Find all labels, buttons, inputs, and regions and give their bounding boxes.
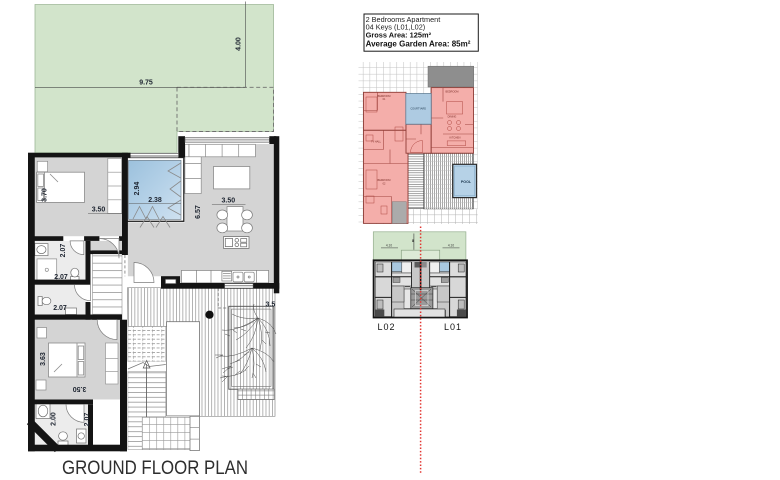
svg-text:2.07: 2.07 [60, 244, 67, 258]
svg-text:3.70: 3.70 [42, 188, 49, 202]
svg-text:4.00: 4.00 [236, 37, 243, 51]
svg-text:COURTYARD: COURTYARD [410, 108, 426, 111]
svg-text:3.50: 3.50 [221, 198, 235, 205]
svg-text:L02: L02 [377, 322, 395, 332]
svg-text:GROUND FLOOR PLAN: GROUND FLOOR PLAN [62, 457, 248, 479]
svg-text:3.63: 3.63 [40, 352, 47, 366]
svg-text:2.07: 2.07 [54, 274, 68, 281]
svg-text:Gross Area: 125m²: Gross Area: 125m² [366, 30, 432, 39]
svg-text:2.07: 2.07 [84, 413, 91, 427]
svg-text:2.00: 2.00 [51, 412, 58, 426]
svg-text:Average Garden Area: 85m²: Average Garden Area: 85m² [366, 40, 471, 49]
svg-text:2.94: 2.94 [134, 182, 141, 196]
svg-text:DINING: DINING [448, 116, 457, 119]
svg-text:9.75: 9.75 [139, 79, 153, 86]
svg-text:6.57: 6.57 [195, 205, 202, 219]
svg-text:3.50: 3.50 [73, 385, 87, 392]
svg-text:BEDROOM: BEDROOM [446, 91, 459, 94]
svg-text:POOL: POOL [461, 180, 472, 184]
svg-text:4.10: 4.10 [386, 243, 392, 247]
svg-text:TV HALL: TV HALL [371, 141, 382, 144]
svg-text:8: 8 [412, 239, 414, 243]
svg-text:4.10: 4.10 [448, 243, 454, 247]
svg-text:2.38: 2.38 [148, 197, 162, 204]
svg-text:KITCHEN: KITCHEN [450, 137, 461, 140]
svg-text:3.50: 3.50 [92, 207, 106, 214]
svg-text:L01: L01 [444, 322, 462, 332]
svg-text:3.5: 3.5 [266, 302, 276, 309]
svg-text:2.07: 2.07 [53, 305, 67, 312]
